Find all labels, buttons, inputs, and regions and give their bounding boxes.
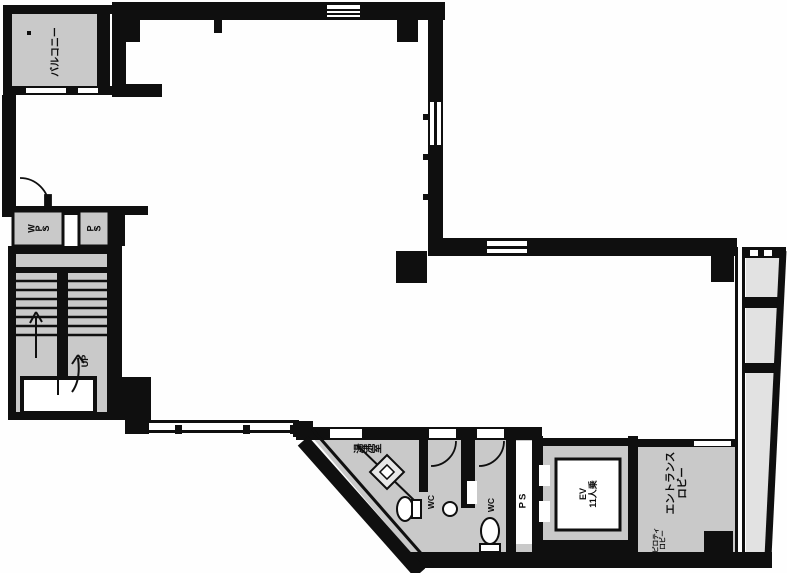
wall xyxy=(3,5,12,95)
floor-plan-drawing xyxy=(0,0,787,573)
balcony-floor xyxy=(8,12,100,89)
elevator-rail-slot xyxy=(539,465,550,486)
wall-bottom xyxy=(406,552,772,568)
toilet-tank xyxy=(412,500,421,518)
wall xyxy=(628,436,638,556)
pilaster xyxy=(124,20,140,42)
balcony-drain-dot xyxy=(27,31,31,35)
glass-line xyxy=(735,247,738,568)
rail-slot xyxy=(764,250,772,256)
window-line xyxy=(487,246,527,249)
rail-slot xyxy=(750,250,758,256)
door-gap xyxy=(694,441,731,446)
toilet-icon xyxy=(397,497,413,521)
column xyxy=(711,239,734,282)
door-gap xyxy=(429,429,456,438)
floor-plan: バルコニー W.P.S P.S UP 湯沸室 WC WC PS EV 11人乗 … xyxy=(0,0,787,573)
wall xyxy=(125,416,149,434)
wall-middle xyxy=(428,238,737,256)
wall xyxy=(506,436,516,556)
elevator-rail-slot xyxy=(539,501,550,522)
door-gap xyxy=(330,429,362,438)
pilaster xyxy=(423,154,429,160)
mullion xyxy=(175,425,182,434)
bay-rail xyxy=(745,363,778,373)
ps-core-floor xyxy=(515,441,534,544)
glass-line xyxy=(742,247,745,568)
window-band-line xyxy=(147,420,299,423)
wall-stub xyxy=(126,84,162,97)
pilaster xyxy=(214,20,222,33)
wall xyxy=(3,5,113,14)
column xyxy=(396,251,427,283)
wall xyxy=(97,5,110,95)
wall xyxy=(535,438,635,446)
elevator-car xyxy=(556,459,620,530)
wall xyxy=(419,438,428,492)
door-gap xyxy=(477,429,504,438)
toilet-icon xyxy=(481,518,499,544)
mullion xyxy=(243,425,250,434)
wall xyxy=(532,540,638,553)
door-leaf xyxy=(45,195,51,211)
corner-column xyxy=(107,377,151,420)
window-band-line xyxy=(147,430,299,433)
toilet-tank xyxy=(480,544,500,552)
ps-shaft-box xyxy=(79,211,109,246)
bay-rail xyxy=(745,297,782,308)
pilaster xyxy=(397,20,418,42)
duct-notch xyxy=(467,481,477,504)
balcony-door-slot xyxy=(26,88,66,93)
wall-top xyxy=(112,2,445,20)
balcony-door-slot xyxy=(78,88,98,93)
wall-left xyxy=(2,95,16,217)
pipe-shafts xyxy=(13,211,109,246)
window-line xyxy=(434,102,437,145)
window-line xyxy=(327,9,360,11)
wash-basin-icon xyxy=(443,502,457,516)
pilaster xyxy=(423,194,429,200)
wps-shaft-box xyxy=(13,211,63,246)
stair-wall xyxy=(8,246,16,420)
wall xyxy=(532,436,543,556)
window-line xyxy=(327,13,360,15)
stair-center-wall xyxy=(57,267,68,391)
pilaster xyxy=(423,114,429,120)
